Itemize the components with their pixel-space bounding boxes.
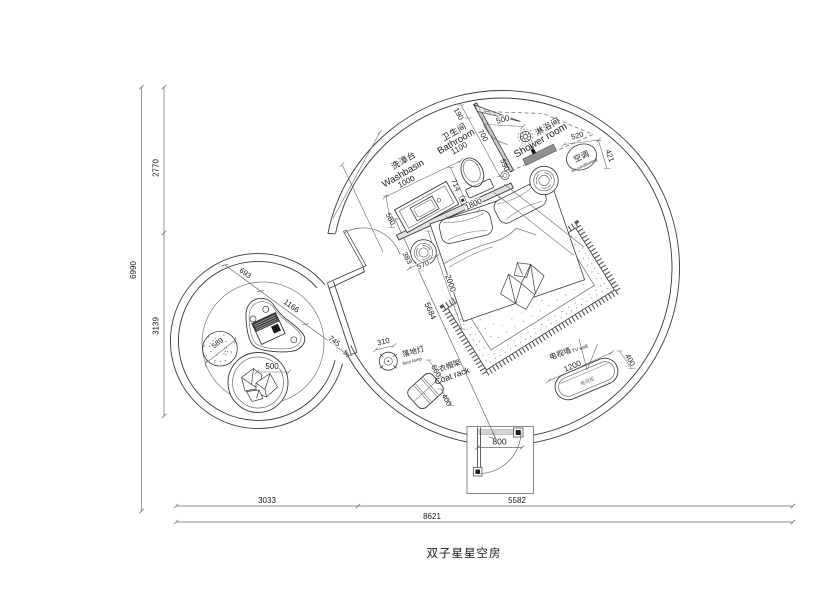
svg-text:双子星星空房: 双子星星空房	[427, 546, 502, 560]
svg-text:800: 800	[492, 437, 506, 447]
svg-text:500: 500	[265, 362, 279, 371]
svg-text:3033: 3033	[258, 496, 276, 505]
svg-text:5582: 5582	[508, 496, 526, 505]
svg-text:6990: 6990	[129, 261, 138, 279]
svg-text:3139: 3139	[152, 317, 161, 335]
svg-text:8621: 8621	[423, 512, 441, 521]
svg-text:2770: 2770	[152, 159, 161, 177]
